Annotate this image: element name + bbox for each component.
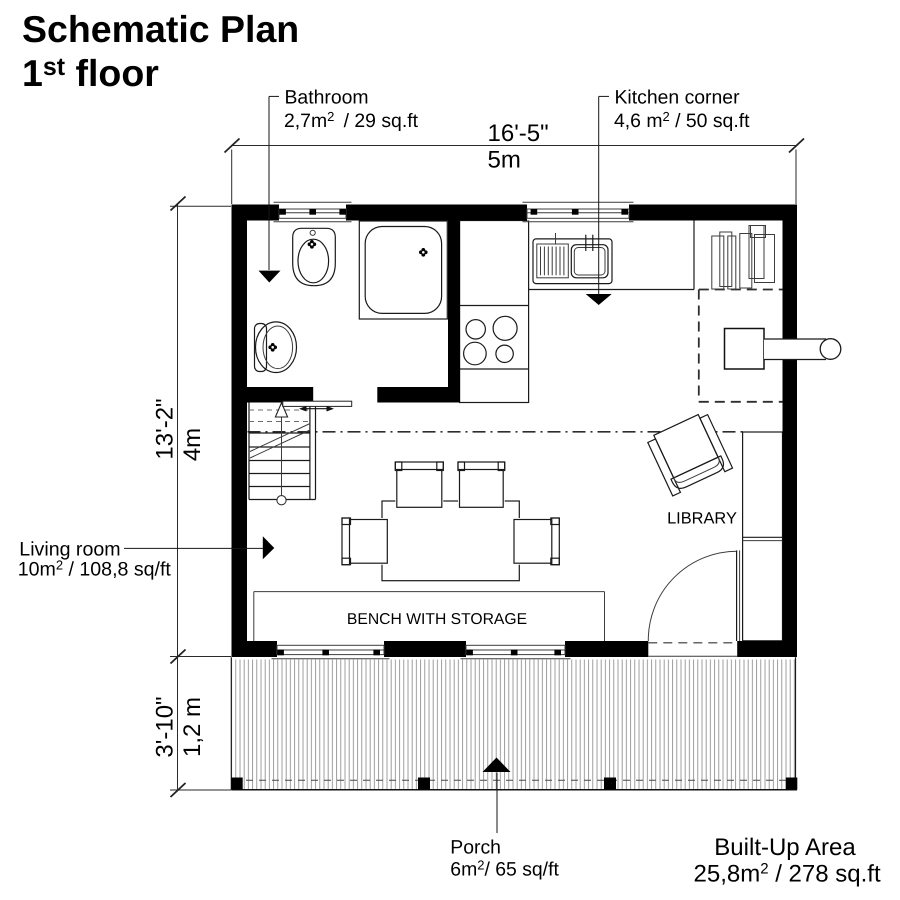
svg-text:25,8m2 / 278 sq.ft: 25,8m2 / 278 sq.ft (694, 861, 881, 888)
svg-text:4m: 4m (179, 428, 206, 461)
svg-text:6m2/ 65 sq/ft: 6m2/ 65 sq/ft (450, 858, 559, 881)
svg-text:Kitchen corner: Kitchen corner (615, 87, 741, 109)
svg-text:13'-2": 13'-2" (152, 398, 179, 459)
svg-text:5m: 5m (488, 147, 521, 174)
svg-text:LIBRARY: LIBRARY (667, 510, 737, 528)
svg-text:BENCH WITH STORAGE: BENCH WITH STORAGE (347, 611, 527, 628)
svg-text:Bathroom: Bathroom (285, 87, 369, 109)
svg-text:Built-Up Area: Built-Up Area (714, 834, 856, 861)
svg-text:3'-10": 3'-10" (152, 696, 179, 757)
svg-text:Schematic Plan: Schematic Plan (22, 8, 299, 50)
svg-text:1st floor: 1st floor (22, 52, 159, 94)
svg-text:Living room: Living room (19, 539, 120, 561)
svg-text:10m2 / 108,8 sq/ft: 10m2 / 108,8 sq/ft (18, 558, 172, 581)
svg-text:1,2 m: 1,2 m (179, 697, 206, 757)
svg-text:2,7m2 / 29 sq.ft: 2,7m2 / 29 sq.ft (284, 109, 419, 132)
svg-text:Porch: Porch (450, 837, 501, 859)
svg-text:4,6 m2 / 50 sq.ft: 4,6 m2 / 50 sq.ft (614, 109, 750, 132)
svg-text:16'-5": 16'-5" (488, 120, 549, 147)
